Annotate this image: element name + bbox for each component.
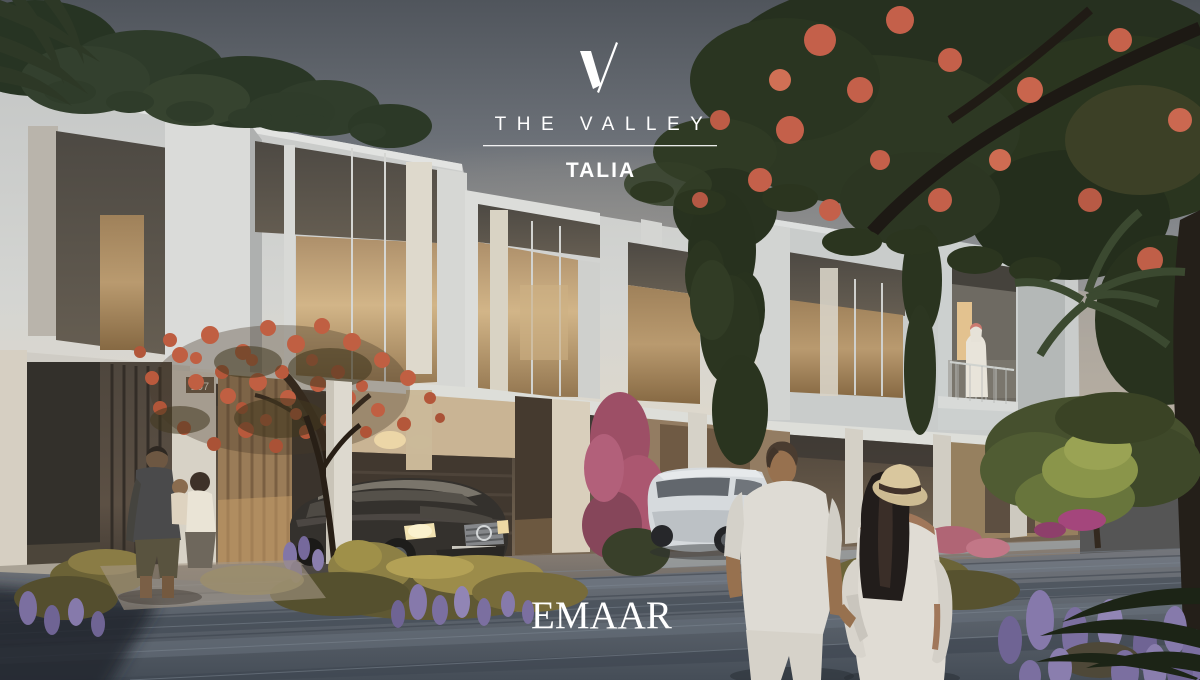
- svg-text:THE VALLEY: THE VALLEY: [495, 114, 714, 135]
- svg-text:EMAAR: EMAAR: [531, 594, 672, 637]
- svg-text:TALIA: TALIA: [566, 159, 636, 182]
